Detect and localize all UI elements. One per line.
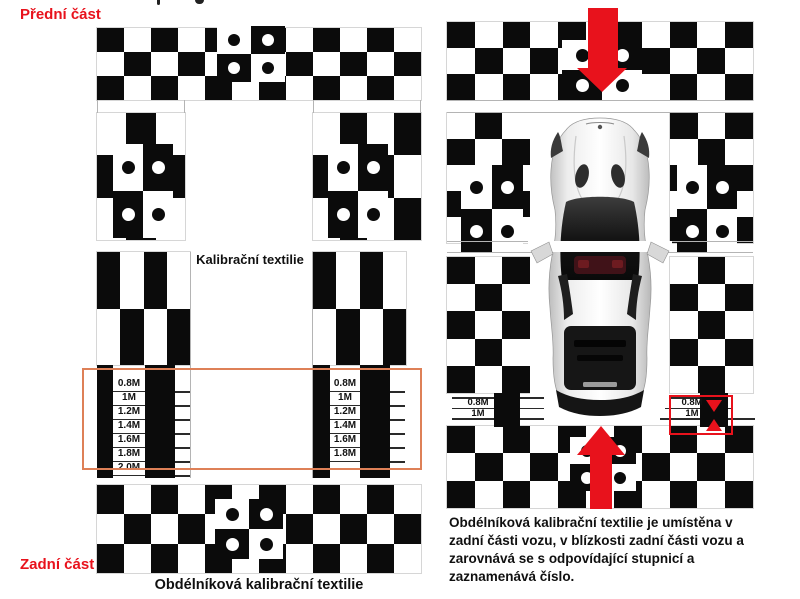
scale-highlight-box bbox=[82, 368, 422, 470]
note-paragraph: Obdélníková kalibrační textilie je umíst… bbox=[449, 514, 769, 586]
car-scale-label: 0.8M bbox=[459, 397, 497, 408]
calibration-textile-label: Kalibrační textilie bbox=[185, 252, 315, 267]
structure-line bbox=[420, 100, 421, 113]
diagram-overlay-layer: 0.8M1M1.2M1.4M1.6M1.8M2.0M0.8M1M1.2M1.4M… bbox=[0, 0, 800, 599]
car-top-view bbox=[528, 110, 672, 422]
structure-line bbox=[447, 100, 753, 101]
rear-section-label: Zadní část bbox=[20, 556, 94, 573]
bottom-caption: Obdélníková kalibrační textilie bbox=[97, 577, 421, 593]
car-scale-label: 1M bbox=[459, 408, 497, 419]
structure-line bbox=[184, 100, 185, 113]
scale-tick bbox=[175, 475, 190, 477]
alignment-triangle-up bbox=[706, 419, 722, 431]
structure-line bbox=[97, 100, 98, 113]
calibration-diagram-page: 0.8M1M1.2M1.4M1.6M1.8M2.0M0.8M1M1.2M1.4M… bbox=[0, 0, 800, 599]
structure-line bbox=[313, 100, 314, 113]
alignment-triangle-down bbox=[706, 400, 722, 412]
alignment-red-box bbox=[669, 395, 733, 435]
front-section-label: Přední část bbox=[20, 6, 101, 23]
black-bar bbox=[494, 393, 520, 427]
